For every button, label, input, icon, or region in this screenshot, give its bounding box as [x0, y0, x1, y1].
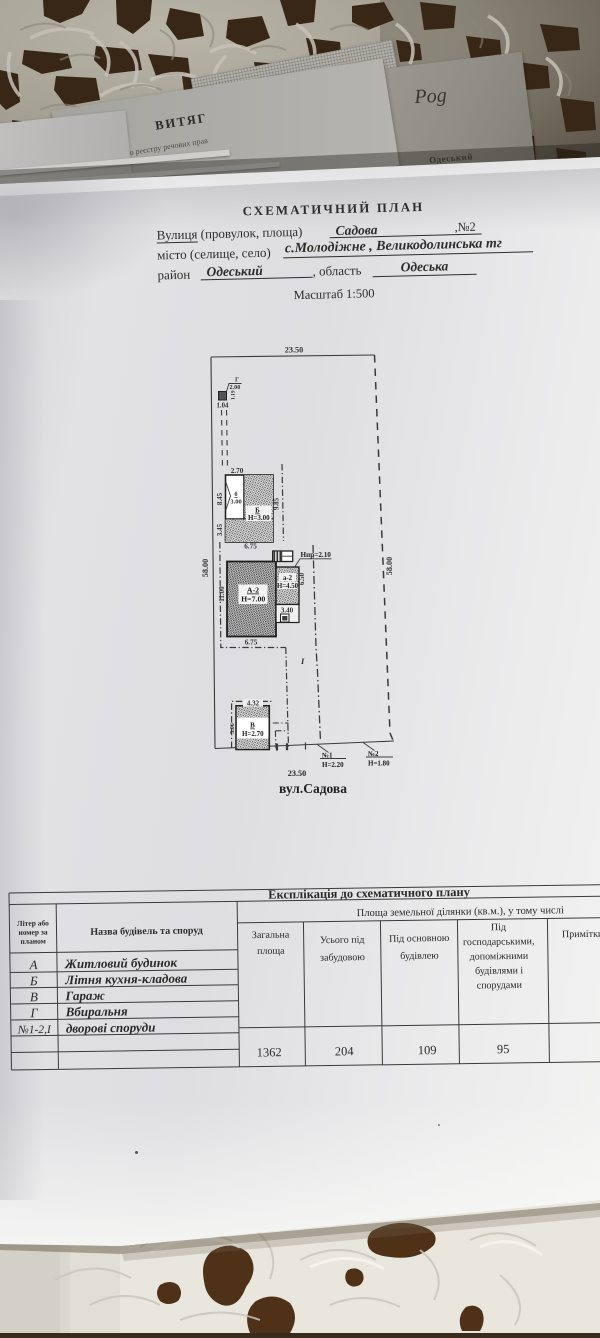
svg-text:2.00: 2.00 — [230, 384, 241, 391]
svg-text:3.00: 3.00 — [230, 499, 241, 506]
svg-text:95: 95 — [497, 1042, 510, 1056]
svg-text:Назва будівель та споруд: Назва будівель та споруд — [90, 925, 203, 938]
svg-text:Н=3.00: Н=3.00 — [248, 514, 270, 522]
svg-text:В: В — [250, 722, 255, 730]
svg-text:58.00: 58.00 — [385, 557, 394, 575]
svg-text:Н=4.50: Н=4.50 — [277, 583, 299, 590]
svg-text:23.50: 23.50 — [288, 769, 306, 778]
svg-text:Літня кухня-кладова: Літня кухня-кладова — [64, 971, 188, 988]
svg-text:Усього під: Усього під — [320, 935, 365, 947]
svg-text:планом: планом — [20, 936, 45, 945]
svg-text:Площа земельної ділянки (кв.м.: Площа земельної ділянки (кв.м.), у тому … — [357, 905, 564, 919]
svg-text:номер за: номер за — [18, 927, 48, 936]
svg-text:Г: Г — [29, 1005, 38, 1020]
svg-text:будівлею: будівлею — [400, 951, 439, 963]
svg-text:Н=2.70: Н=2.70 — [242, 730, 264, 738]
svg-text:В: В — [30, 989, 38, 1004]
svg-text:№1-2,І: №1-2,І — [17, 1024, 52, 1036]
svg-text:5.06: 5.06 — [230, 723, 236, 734]
svg-text:А: А — [28, 957, 37, 972]
svg-text:№2: №2 — [367, 750, 379, 758]
svg-text:2.70: 2.70 — [231, 467, 244, 475]
svg-text:23.50: 23.50 — [285, 346, 303, 355]
svg-text:а-2: а-2 — [283, 575, 293, 582]
svg-text:вул.Садова: вул.Садова — [279, 781, 347, 796]
svg-text:допоміжними: допоміжними — [470, 951, 529, 963]
svg-text:6.50: 6.50 — [298, 572, 306, 585]
svg-text:9.85: 9.85 — [273, 497, 281, 510]
svg-text:Примітки: Примітки — [562, 929, 600, 941]
svg-text:1.04: 1.04 — [217, 403, 229, 410]
svg-text:11.00: 11.00 — [218, 586, 226, 602]
svg-text:Житловий будинок: Житловий будинок — [64, 955, 178, 972]
svg-text:6.75: 6.75 — [244, 543, 257, 551]
svg-text:58.00: 58.00 — [201, 559, 210, 577]
svg-text:І: І — [300, 656, 305, 666]
svg-text:Літер або: Літер або — [17, 918, 49, 927]
svg-text:Н=1.80: Н=1.80 — [368, 760, 390, 768]
svg-text:будівлями і: будівлями і — [475, 965, 523, 977]
svg-text:№1: №1 — [321, 752, 333, 760]
svg-text:204: 204 — [335, 1044, 355, 1058]
svg-text:Експлікація до схематичного пл: Експлікація до схематичного плану — [268, 885, 471, 902]
svg-text:3.45: 3.45 — [216, 523, 224, 536]
svg-text:6.75: 6.75 — [245, 639, 258, 647]
svg-text:3.40: 3.40 — [281, 607, 294, 615]
svg-text:109: 109 — [418, 1043, 437, 1057]
svg-text:дворові споруди: дворові споруди — [66, 1019, 156, 1035]
svg-text:площа: площа — [257, 946, 285, 957]
svg-text:Г: Г — [235, 377, 239, 384]
svg-text:1362: 1362 — [257, 1045, 282, 1059]
svg-text:Вбиральня: Вбиральня — [65, 1003, 128, 1019]
svg-text:Нпр=2.10: Нпр=2.10 — [301, 551, 332, 559]
svg-text:1.19: 1.19 — [231, 390, 237, 400]
svg-text:Під: Під — [491, 922, 506, 933]
svg-text:8.45: 8.45 — [216, 492, 224, 505]
svg-text:Б: Б — [29, 973, 38, 988]
svg-text:Н=2.20: Н=2.20 — [322, 761, 344, 769]
svg-text:Загальна: Загальна — [252, 930, 290, 942]
svg-text:Під основною: Під основною — [389, 933, 450, 945]
svg-text:господарськими,: господарськими, — [463, 936, 535, 948]
svg-text:забудовою: забудовою — [320, 952, 365, 964]
svg-text:4.32: 4.32 — [247, 700, 260, 708]
svg-text:Н=7.00: Н=7.00 — [241, 595, 265, 604]
svg-text:спорудами: спорудами — [477, 980, 523, 992]
svg-text:А-2: А-2 — [247, 586, 259, 595]
svg-text:Гараж: Гараж — [64, 988, 105, 1004]
